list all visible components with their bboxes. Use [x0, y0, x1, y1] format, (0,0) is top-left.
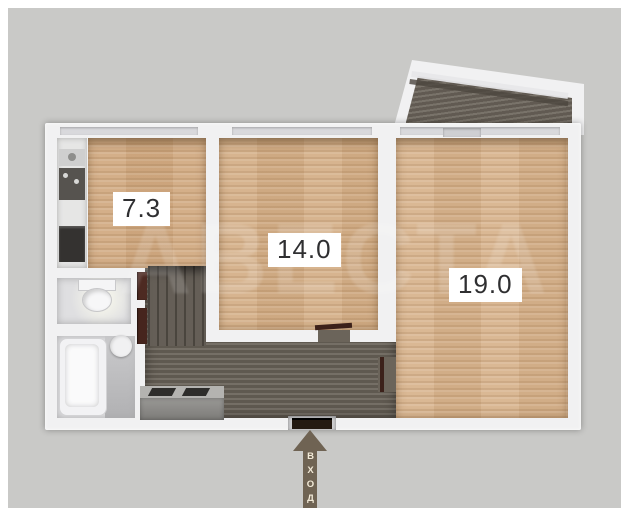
living-room-door-opening	[318, 330, 350, 342]
bench-slot	[182, 388, 210, 396]
entrance-arrow-icon: ВХОД	[293, 430, 327, 510]
arrow-shaft: ВХОД	[303, 450, 317, 508]
kitchen-window	[60, 127, 198, 135]
living-room-window	[232, 127, 372, 135]
wc-door	[137, 272, 147, 300]
wardrobe-furniture	[148, 266, 206, 346]
living-room-area-label: 14.0	[268, 233, 341, 267]
shoe-bench-furniture	[140, 386, 224, 420]
bathtub-inner	[65, 344, 99, 407]
kitchen-area-label: 7.3	[113, 192, 170, 226]
stove-burner-icon	[63, 173, 68, 178]
bedroom-area-label: 19.0	[449, 268, 522, 302]
bedroom-door-leaf	[380, 357, 384, 392]
bathroom-door	[137, 308, 147, 344]
bench-front	[140, 398, 224, 420]
floor-plan-image: ВХОД АВЕСТА 7.3 14.0 19.0	[0, 0, 629, 516]
washbasin-fixture	[110, 335, 132, 357]
bench-slot	[148, 388, 176, 396]
fridge-fixture	[59, 226, 85, 262]
sink-basin-icon	[68, 153, 76, 161]
toilet-fixture	[82, 288, 112, 312]
entrance-label: ВХОД	[303, 451, 317, 507]
stove-burner-icon	[74, 179, 79, 184]
entrance-door	[292, 418, 332, 429]
arrow-head-icon	[293, 430, 327, 451]
balcony-door	[443, 128, 481, 137]
